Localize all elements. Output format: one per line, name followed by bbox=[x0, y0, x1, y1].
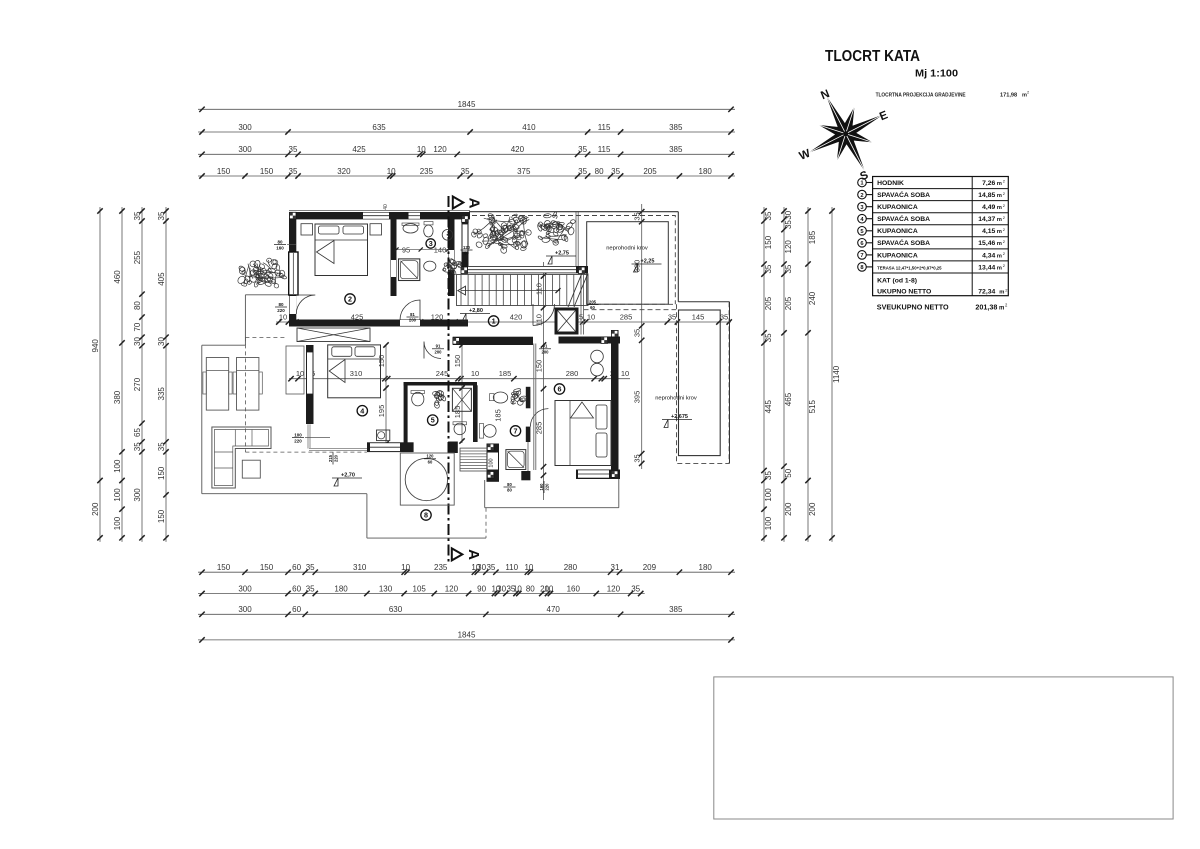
svg-text:515: 515 bbox=[808, 399, 817, 413]
svg-text:35: 35 bbox=[289, 167, 298, 176]
svg-text:35: 35 bbox=[633, 329, 642, 337]
svg-text:630: 630 bbox=[389, 605, 403, 614]
svg-text:180: 180 bbox=[334, 584, 348, 593]
svg-text:13,44: 13,44 bbox=[978, 264, 995, 271]
svg-text:200: 200 bbox=[808, 502, 817, 516]
svg-text:235: 235 bbox=[434, 563, 448, 572]
svg-text:35: 35 bbox=[784, 220, 793, 229]
svg-text:195: 195 bbox=[377, 405, 386, 418]
svg-text:185: 185 bbox=[499, 369, 512, 378]
svg-text:81: 81 bbox=[410, 312, 415, 317]
svg-text:60: 60 bbox=[428, 459, 433, 464]
svg-text:A: A bbox=[465, 198, 482, 209]
svg-text:150: 150 bbox=[260, 563, 274, 572]
svg-text:209: 209 bbox=[643, 563, 657, 572]
svg-text:30: 30 bbox=[157, 337, 166, 346]
svg-text:255: 255 bbox=[133, 250, 142, 264]
svg-text:30: 30 bbox=[497, 584, 506, 593]
svg-text:10: 10 bbox=[401, 563, 410, 572]
svg-text:70: 70 bbox=[133, 322, 142, 331]
svg-text:120: 120 bbox=[784, 240, 793, 254]
svg-text:80: 80 bbox=[277, 239, 283, 244]
svg-text:405: 405 bbox=[157, 272, 166, 286]
svg-text:m: m bbox=[997, 193, 1002, 199]
svg-text:100: 100 bbox=[489, 458, 495, 467]
svg-text:185: 185 bbox=[808, 230, 817, 244]
svg-text:80: 80 bbox=[507, 482, 512, 487]
svg-text:m: m bbox=[997, 241, 1002, 247]
svg-text:310: 310 bbox=[353, 563, 367, 572]
svg-text:80: 80 bbox=[278, 302, 284, 307]
svg-text:4,49: 4,49 bbox=[982, 204, 995, 211]
svg-text:60: 60 bbox=[292, 563, 301, 572]
svg-text:300: 300 bbox=[238, 145, 252, 154]
svg-text:HODNIK: HODNIK bbox=[877, 180, 904, 187]
svg-text:4: 4 bbox=[360, 406, 364, 415]
svg-text:10: 10 bbox=[587, 313, 595, 322]
svg-text:220: 220 bbox=[277, 308, 285, 313]
svg-text:SVEUKUPNO NETTO: SVEUKUPNO NETTO bbox=[877, 303, 949, 312]
svg-text:100: 100 bbox=[764, 488, 773, 502]
svg-text:100: 100 bbox=[294, 432, 302, 437]
svg-text:35: 35 bbox=[486, 563, 495, 572]
svg-text:385: 385 bbox=[669, 605, 683, 614]
svg-text:5: 5 bbox=[431, 416, 435, 425]
svg-text:35: 35 bbox=[133, 442, 142, 451]
svg-text:4,15: 4,15 bbox=[982, 228, 995, 235]
svg-text:1845: 1845 bbox=[458, 100, 476, 109]
svg-text:35: 35 bbox=[157, 211, 166, 220]
svg-text:A: A bbox=[465, 549, 482, 560]
svg-text:SPAVAĆA SOBA: SPAVAĆA SOBA bbox=[877, 238, 930, 247]
svg-text:470: 470 bbox=[547, 605, 561, 614]
svg-text:220: 220 bbox=[294, 438, 302, 443]
svg-text:UKUPNO NETTO: UKUPNO NETTO bbox=[877, 288, 931, 295]
svg-text:35: 35 bbox=[764, 211, 773, 220]
svg-text:150: 150 bbox=[377, 355, 386, 368]
svg-text:160: 160 bbox=[567, 584, 581, 593]
svg-text:200: 200 bbox=[91, 502, 100, 516]
svg-text:320: 320 bbox=[337, 167, 351, 176]
svg-text:80: 80 bbox=[526, 584, 535, 593]
svg-text:420: 420 bbox=[510, 313, 523, 322]
svg-text:m: m bbox=[997, 253, 1002, 259]
svg-text:150: 150 bbox=[764, 235, 773, 249]
svg-text:385: 385 bbox=[669, 145, 683, 154]
svg-text:15,46: 15,46 bbox=[978, 240, 995, 247]
svg-text:635: 635 bbox=[372, 123, 386, 132]
svg-text:445: 445 bbox=[764, 399, 773, 413]
svg-text:+2,70: +2,70 bbox=[341, 473, 355, 479]
svg-text:KUPAONICA: KUPAONICA bbox=[877, 228, 918, 235]
svg-text:neprohodni krov: neprohodni krov bbox=[655, 396, 697, 402]
svg-text:SPAVAĆA SOBA: SPAVAĆA SOBA bbox=[877, 190, 930, 199]
svg-text:171,98: 171,98 bbox=[1000, 93, 1017, 99]
svg-text:285: 285 bbox=[620, 313, 633, 322]
svg-text:220: 220 bbox=[545, 483, 550, 491]
svg-text:10: 10 bbox=[621, 369, 629, 378]
svg-text:TLOCRT KATA: TLOCRT KATA bbox=[825, 48, 920, 65]
svg-text:100: 100 bbox=[113, 488, 122, 502]
svg-text:14,85: 14,85 bbox=[978, 192, 995, 199]
svg-text:35: 35 bbox=[784, 264, 793, 273]
svg-text:115: 115 bbox=[598, 145, 611, 154]
svg-text:neprohodni krov: neprohodni krov bbox=[606, 246, 648, 252]
svg-text:215: 215 bbox=[328, 454, 333, 462]
svg-text:35: 35 bbox=[133, 211, 142, 220]
svg-text:31: 31 bbox=[611, 563, 620, 572]
svg-text:1140: 1140 bbox=[832, 365, 841, 383]
svg-text:80: 80 bbox=[595, 167, 604, 176]
svg-text:280: 280 bbox=[566, 369, 579, 378]
svg-text:205: 205 bbox=[643, 167, 657, 176]
svg-text:35: 35 bbox=[764, 471, 773, 480]
svg-text:35: 35 bbox=[764, 264, 773, 273]
svg-text:280: 280 bbox=[564, 563, 578, 572]
svg-text:10: 10 bbox=[544, 584, 553, 593]
svg-text:120: 120 bbox=[463, 245, 471, 250]
svg-text:120: 120 bbox=[445, 584, 459, 593]
svg-text:35: 35 bbox=[157, 442, 166, 451]
svg-text:10: 10 bbox=[417, 145, 426, 154]
svg-text:91: 91 bbox=[543, 344, 548, 349]
svg-text:30: 30 bbox=[784, 210, 793, 219]
svg-text:1845: 1845 bbox=[458, 631, 476, 640]
svg-text:425: 425 bbox=[352, 145, 366, 154]
svg-text:90: 90 bbox=[477, 584, 486, 593]
svg-text:m: m bbox=[997, 205, 1002, 211]
svg-text:200: 200 bbox=[435, 349, 443, 354]
svg-text:10: 10 bbox=[471, 369, 479, 378]
svg-text:35: 35 bbox=[578, 167, 587, 176]
svg-text:10: 10 bbox=[524, 563, 533, 572]
svg-text:35: 35 bbox=[461, 167, 470, 176]
svg-text:205: 205 bbox=[784, 296, 793, 310]
svg-text:150: 150 bbox=[260, 167, 274, 176]
svg-text:95: 95 bbox=[402, 246, 410, 255]
svg-text:35: 35 bbox=[631, 584, 640, 593]
svg-text:10: 10 bbox=[279, 313, 287, 322]
svg-text:35: 35 bbox=[633, 454, 642, 462]
svg-text:100: 100 bbox=[764, 516, 773, 530]
svg-text:240: 240 bbox=[808, 291, 817, 305]
svg-text:300: 300 bbox=[238, 584, 252, 593]
svg-text:60: 60 bbox=[292, 605, 301, 614]
svg-text:160: 160 bbox=[276, 245, 284, 250]
svg-text:465: 465 bbox=[784, 392, 793, 406]
svg-text:110: 110 bbox=[505, 563, 518, 572]
svg-text:35: 35 bbox=[289, 145, 298, 154]
svg-text:80: 80 bbox=[133, 301, 142, 310]
svg-text:200: 200 bbox=[542, 349, 550, 354]
svg-text:220: 220 bbox=[334, 454, 339, 462]
svg-text:2: 2 bbox=[348, 295, 352, 304]
svg-text:KUPAONICA: KUPAONICA bbox=[877, 204, 918, 211]
svg-text:50: 50 bbox=[784, 468, 793, 477]
svg-text:150: 150 bbox=[453, 355, 462, 368]
svg-text:+2,675: +2,675 bbox=[671, 414, 688, 420]
svg-text:35: 35 bbox=[668, 313, 676, 322]
svg-text:130: 130 bbox=[379, 584, 393, 593]
svg-text:10: 10 bbox=[513, 584, 522, 593]
svg-text:10: 10 bbox=[296, 369, 304, 378]
svg-text:380: 380 bbox=[113, 390, 122, 404]
svg-text:300: 300 bbox=[133, 488, 142, 502]
svg-text:TLOCRTNA PROJEKCIJA GRADJEVINE: TLOCRTNA PROJEKCIJA GRADJEVINE bbox=[876, 93, 966, 99]
svg-text:7,26: 7,26 bbox=[982, 180, 995, 187]
svg-text:m: m bbox=[997, 265, 1002, 271]
svg-text:6: 6 bbox=[558, 385, 562, 394]
svg-text:1: 1 bbox=[492, 317, 496, 326]
svg-text:375: 375 bbox=[517, 167, 531, 176]
svg-text:110: 110 bbox=[535, 283, 544, 295]
svg-text:300: 300 bbox=[238, 605, 252, 614]
svg-text:65: 65 bbox=[133, 428, 142, 437]
svg-text:Mj 1:100: Mj 1:100 bbox=[915, 68, 958, 80]
svg-text:100: 100 bbox=[113, 459, 122, 473]
svg-text:180: 180 bbox=[699, 563, 713, 572]
svg-text:150: 150 bbox=[217, 167, 231, 176]
svg-text:+2,75: +2,75 bbox=[555, 251, 569, 257]
svg-text:35: 35 bbox=[633, 212, 642, 220]
svg-text:m: m bbox=[997, 181, 1002, 187]
svg-text:100: 100 bbox=[113, 516, 122, 530]
svg-text:4,34: 4,34 bbox=[982, 252, 995, 259]
svg-text:35: 35 bbox=[764, 333, 773, 342]
svg-text:m: m bbox=[997, 229, 1002, 235]
svg-text:m: m bbox=[997, 217, 1002, 223]
svg-text:+2,80: +2,80 bbox=[469, 308, 483, 314]
svg-text:245: 245 bbox=[436, 369, 449, 378]
svg-text:185: 185 bbox=[453, 406, 462, 419]
svg-text:60: 60 bbox=[292, 584, 301, 593]
svg-text:60: 60 bbox=[464, 251, 469, 256]
svg-text:72,34: 72,34 bbox=[978, 288, 995, 295]
svg-text:420: 420 bbox=[511, 145, 525, 154]
svg-text:KUPAONICA: KUPAONICA bbox=[877, 252, 918, 259]
svg-text:940: 940 bbox=[91, 339, 100, 353]
svg-text:KAT (od 1-8): KAT (od 1-8) bbox=[877, 277, 917, 284]
svg-text:3: 3 bbox=[429, 239, 433, 248]
svg-text:30: 30 bbox=[477, 563, 486, 572]
svg-text:335: 335 bbox=[157, 387, 166, 401]
svg-text:205: 205 bbox=[764, 296, 773, 310]
svg-text:385: 385 bbox=[669, 123, 683, 132]
svg-text:SPAVAĆA SOBA: SPAVAĆA SOBA bbox=[877, 214, 930, 223]
svg-text:310: 310 bbox=[350, 369, 363, 378]
svg-text:235: 235 bbox=[420, 167, 434, 176]
svg-text:410: 410 bbox=[522, 123, 536, 132]
svg-text:7: 7 bbox=[514, 427, 518, 436]
svg-text:395: 395 bbox=[633, 391, 642, 404]
svg-text:m: m bbox=[999, 306, 1004, 312]
svg-text:460: 460 bbox=[113, 270, 122, 284]
svg-text:30: 30 bbox=[133, 337, 142, 346]
svg-text:270: 270 bbox=[133, 377, 142, 391]
svg-text:105: 105 bbox=[413, 584, 427, 593]
svg-text:150: 150 bbox=[217, 563, 231, 572]
svg-text:120: 120 bbox=[607, 584, 621, 593]
svg-text:80: 80 bbox=[507, 488, 512, 493]
svg-text:35: 35 bbox=[306, 584, 315, 593]
svg-text:35: 35 bbox=[306, 563, 315, 572]
svg-text:200: 200 bbox=[409, 318, 417, 323]
svg-text:60: 60 bbox=[590, 305, 595, 310]
svg-text:205: 205 bbox=[589, 299, 597, 304]
svg-text:TERASA 12,47*1,50+2*0,97*0,25: TERASA 12,47*1,50+2*0,97*0,25 bbox=[877, 265, 942, 270]
svg-text:150: 150 bbox=[157, 466, 166, 480]
svg-text:300: 300 bbox=[238, 123, 252, 132]
svg-text:40: 40 bbox=[383, 204, 389, 210]
svg-text:200: 200 bbox=[784, 502, 793, 516]
svg-text:35: 35 bbox=[578, 145, 587, 154]
svg-text:145: 145 bbox=[692, 313, 705, 322]
svg-text:2: 2 bbox=[860, 193, 863, 199]
svg-text:+2,25: +2,25 bbox=[641, 259, 655, 265]
svg-text:140: 140 bbox=[434, 246, 447, 255]
svg-text:185: 185 bbox=[494, 409, 503, 422]
svg-text:160: 160 bbox=[539, 483, 544, 491]
svg-text:35: 35 bbox=[611, 167, 620, 176]
svg-text:m: m bbox=[999, 289, 1004, 295]
svg-text:8: 8 bbox=[424, 511, 428, 520]
svg-text:120: 120 bbox=[433, 145, 447, 154]
svg-text:115: 115 bbox=[598, 123, 611, 132]
svg-text:110: 110 bbox=[535, 314, 544, 326]
svg-text:201,38: 201,38 bbox=[975, 303, 997, 312]
svg-text:7: 7 bbox=[860, 253, 863, 259]
svg-text:35: 35 bbox=[720, 313, 728, 322]
svg-text:10: 10 bbox=[387, 167, 396, 176]
svg-text:91: 91 bbox=[436, 344, 441, 349]
svg-text:150: 150 bbox=[157, 509, 166, 523]
svg-text:14,37: 14,37 bbox=[978, 216, 995, 223]
svg-text:120: 120 bbox=[427, 454, 435, 459]
svg-text:180: 180 bbox=[699, 167, 713, 176]
